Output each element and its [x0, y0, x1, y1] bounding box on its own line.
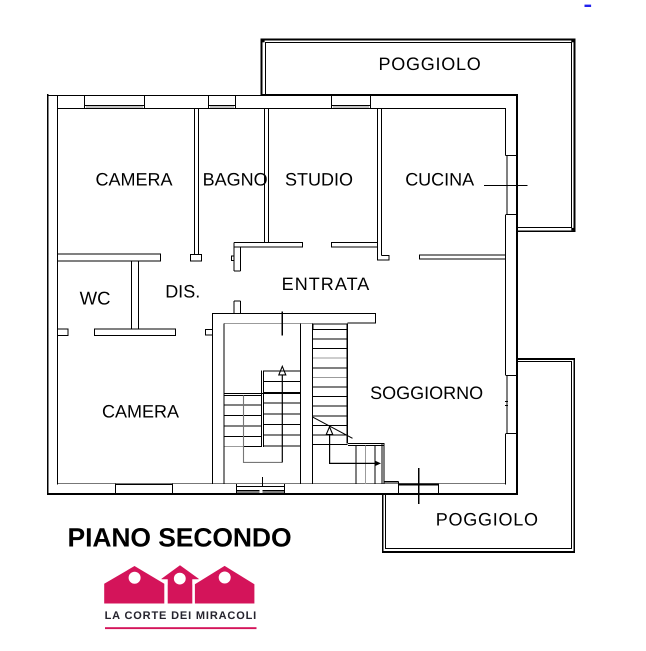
svg-text:POGGIOLO: POGGIOLO [378, 54, 481, 74]
svg-text:STUDIO: STUDIO [285, 170, 353, 190]
svg-text:SOGGIORNO: SOGGIORNO [370, 383, 483, 403]
svg-text:BAGNO: BAGNO [203, 170, 268, 190]
svg-text:CAMERA: CAMERA [95, 170, 172, 190]
svg-text:WC: WC [80, 288, 111, 309]
svg-text:DIS.: DIS. [165, 282, 200, 302]
svg-text:POGGIOLO: POGGIOLO [436, 509, 539, 529]
svg-text:LA CORTE DEI MIRACOLI: LA CORTE DEI MIRACOLI [105, 610, 258, 622]
svg-text:ENTRATA: ENTRATA [282, 274, 371, 294]
svg-text:PIANO SECONDO: PIANO SECONDO [68, 522, 292, 552]
svg-text:CAMERA: CAMERA [102, 401, 179, 421]
svg-text:CUCINA: CUCINA [405, 170, 474, 190]
